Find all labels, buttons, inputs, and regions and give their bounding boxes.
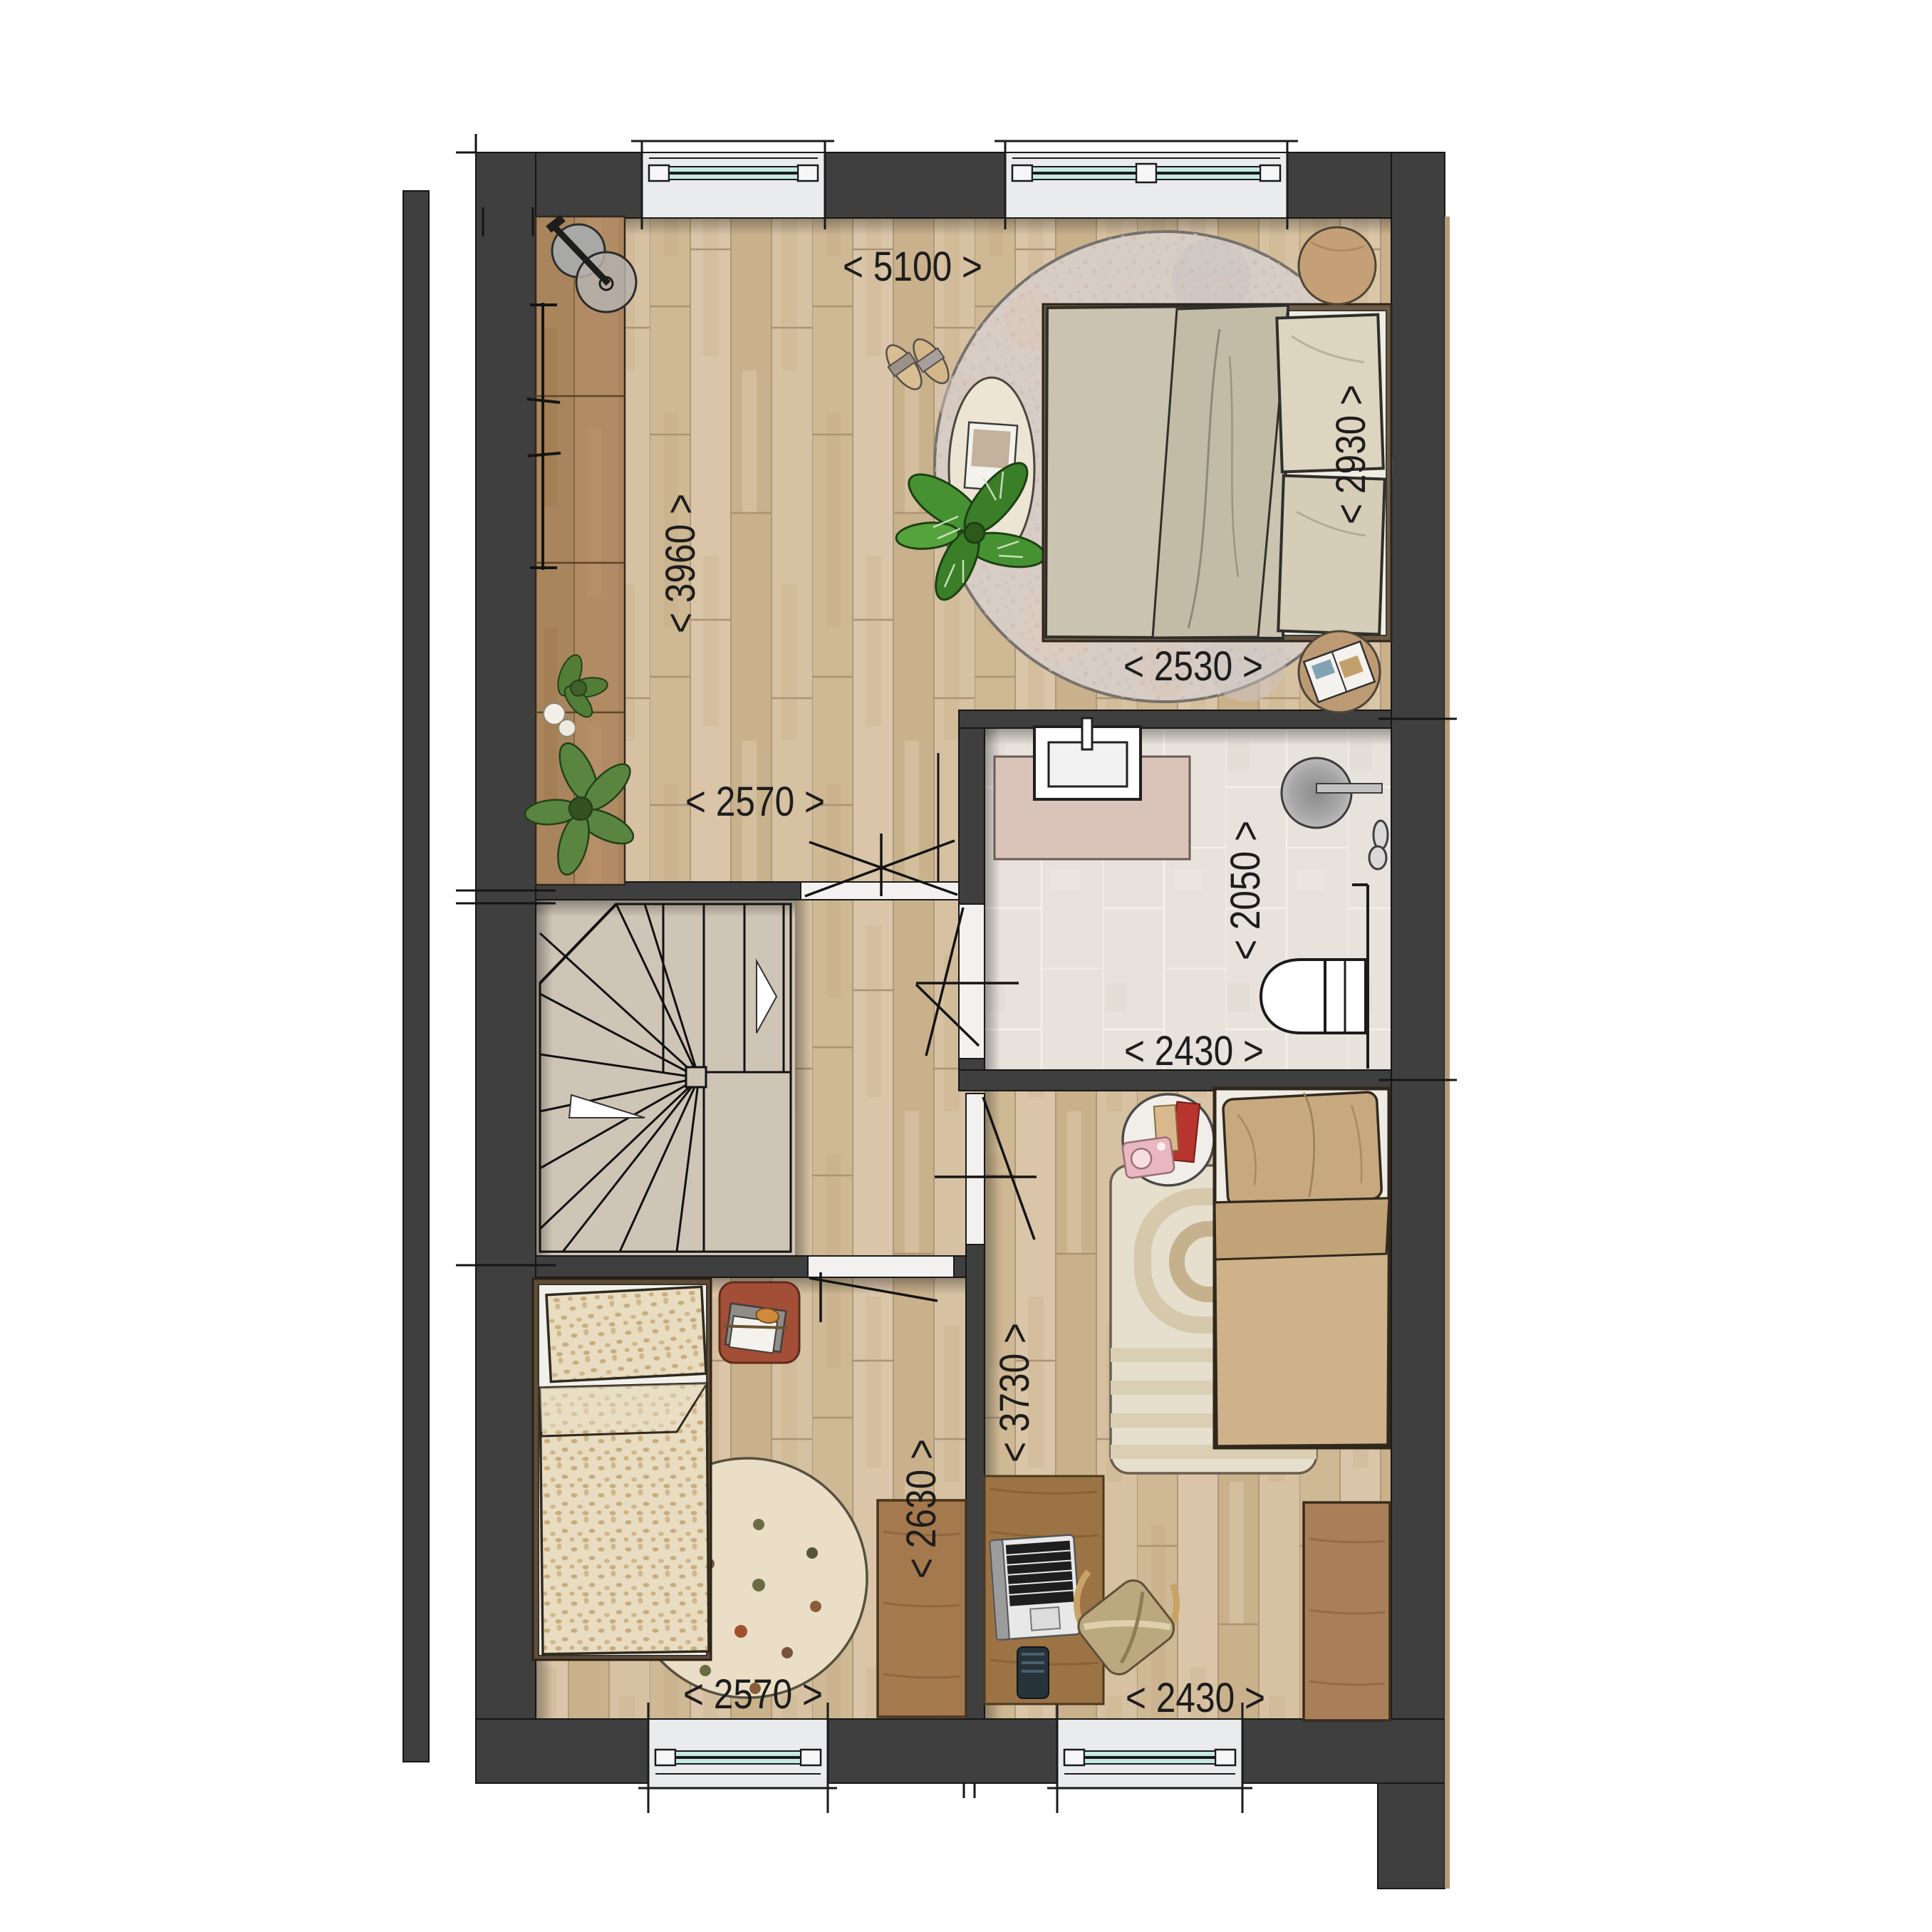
svg-text:< 3730 >: < 3730 > [992, 1323, 1038, 1463]
svg-text:< 2050 >: < 2050 > [1222, 821, 1269, 960]
svg-text:< 5100 >: < 5100 > [843, 244, 982, 290]
svg-text:< 2570 >: < 2570 > [685, 779, 825, 825]
svg-text:< 2430 >: < 2430 > [1124, 1028, 1264, 1074]
svg-text:< 2570 >: < 2570 > [683, 1671, 823, 1718]
svg-text:< 2430 >: < 2430 > [1126, 1675, 1265, 1721]
svg-text:< 2930 >: < 2930 > [1328, 385, 1374, 524]
svg-text:< 3960 >: < 3960 > [658, 494, 704, 633]
svg-text:< 2630 >: < 2630 > [898, 1439, 945, 1579]
svg-text:< 2530 >: < 2530 > [1123, 643, 1263, 690]
